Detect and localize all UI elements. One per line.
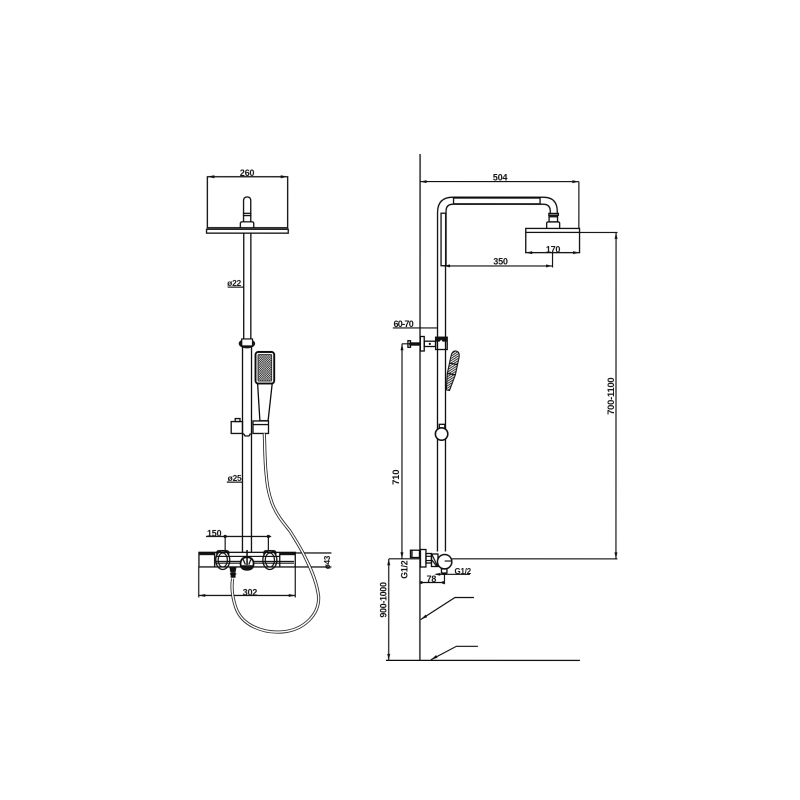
svg-text:170: 170 — [546, 244, 561, 254]
svg-text:302: 302 — [243, 587, 258, 597]
svg-text:78: 78 — [427, 574, 437, 584]
svg-text:ø22: ø22 — [227, 278, 241, 288]
svg-text:G1/2: G1/2 — [399, 560, 409, 579]
svg-text:ø43: ø43 — [323, 555, 332, 569]
svg-text:900-1000: 900-1000 — [378, 582, 388, 618]
svg-text:350: 350 — [493, 257, 508, 267]
svg-text:150: 150 — [207, 528, 222, 538]
svg-text:60-70: 60-70 — [394, 319, 414, 329]
svg-text:710: 710 — [391, 470, 402, 485]
svg-text:700-1100: 700-1100 — [606, 378, 617, 415]
svg-text:260: 260 — [240, 168, 255, 178]
svg-text:504: 504 — [493, 172, 508, 182]
